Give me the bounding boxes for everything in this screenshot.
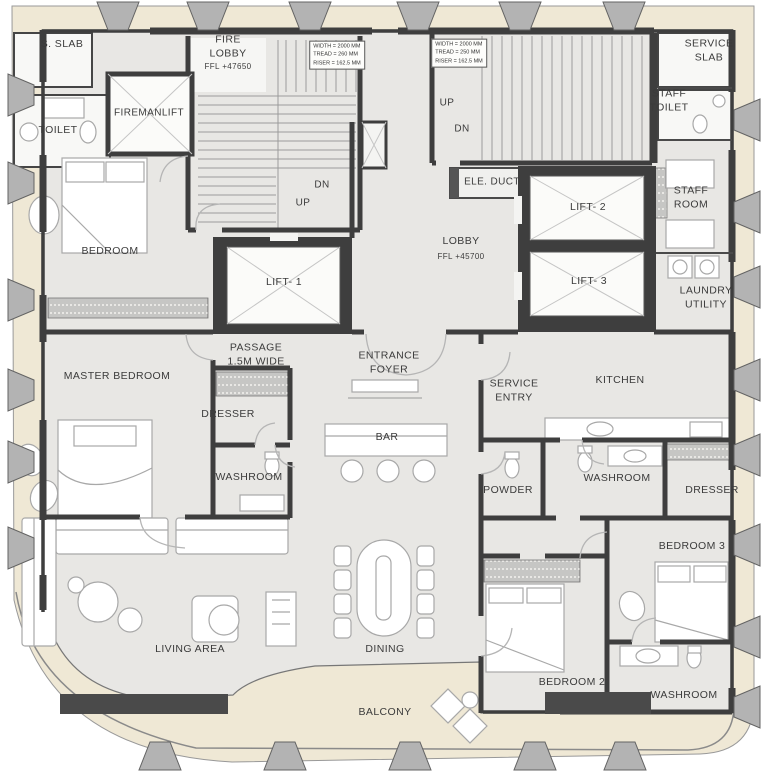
label-fire-lobby: FIRE LOBBY bbox=[209, 33, 246, 60]
label-up-left-stair: UP bbox=[296, 197, 311, 210]
label-dining: DINING bbox=[365, 643, 404, 657]
label-entrance-foyer: ENTRANCE FOYER bbox=[359, 349, 420, 376]
label-kitchen: KITCHEN bbox=[596, 374, 645, 388]
room-labels: S. SLABFIRE LOBBYFFL +47650SERVICE SLABT… bbox=[0, 0, 768, 773]
label-dresser-master: DRESSER bbox=[201, 408, 255, 422]
stair-spec-2: WIDTH = 2000 MMTREAD = 250 MMRISER = 162… bbox=[431, 39, 487, 68]
label-laundry-utility: LAUNDRY UTILITY bbox=[680, 284, 733, 311]
label-fireman-lift: FIREMANLIFT bbox=[114, 107, 184, 120]
label-powder: POWDER bbox=[483, 484, 533, 498]
label-lift-1: LIFT- 1 bbox=[266, 276, 302, 290]
label-washroom-kitchen: WASHROOM bbox=[584, 472, 651, 486]
label-dn-right-stair: DN bbox=[454, 123, 469, 136]
label-service-slab: SERVICE SLAB bbox=[685, 37, 734, 64]
label-toilet: TOILET bbox=[39, 124, 78, 138]
label-bedroom-2: BEDROOM 2 bbox=[539, 676, 606, 690]
label-washroom-master: WASHROOM bbox=[216, 471, 283, 485]
label-s-slab: S. SLAB bbox=[41, 38, 84, 52]
label-bar: BAR bbox=[376, 431, 399, 445]
label-washroom-bedroom2: WASHROOM bbox=[651, 689, 718, 703]
label-staff-room: STAFF ROOM bbox=[674, 184, 708, 211]
label-balcony: BALCONY bbox=[359, 706, 412, 720]
label-dresser-bedroom3: DRESSER bbox=[685, 484, 739, 498]
label-lift-2: LIFT- 2 bbox=[570, 201, 606, 215]
label-lobby-ffl: FFL +45700 bbox=[437, 252, 484, 262]
label-bedroom-3: BEDROOM 3 bbox=[659, 540, 726, 554]
label-fire-lobby-ffl: FFL +47650 bbox=[204, 62, 251, 72]
label-dn-left-stair: DN bbox=[314, 179, 329, 192]
label-master-bedroom: MASTER BEDROOM bbox=[64, 370, 171, 384]
floor-plan: S. SLABFIRE LOBBYFFL +47650SERVICE SLABT… bbox=[0, 0, 768, 773]
label-lift-3: LIFT- 3 bbox=[571, 275, 607, 289]
label-up-right-stair: UP bbox=[440, 97, 455, 110]
label-service-entry: SERVICE ENTRY bbox=[490, 377, 539, 404]
label-staff-toilet: STAFF TOILET bbox=[650, 87, 689, 114]
label-lobby: LOBBY bbox=[442, 235, 479, 249]
label-living-area: LIVING AREA bbox=[155, 643, 225, 657]
label-passage: PASSAGE 1.5M WIDE bbox=[227, 341, 284, 368]
stair-spec-1: WIDTH = 2000 MMTREAD = 260 MMRISER = 162… bbox=[309, 41, 365, 70]
label-bedroom: BEDROOM bbox=[81, 245, 138, 259]
label-ele-duct: ELE. DUCT bbox=[464, 176, 520, 189]
